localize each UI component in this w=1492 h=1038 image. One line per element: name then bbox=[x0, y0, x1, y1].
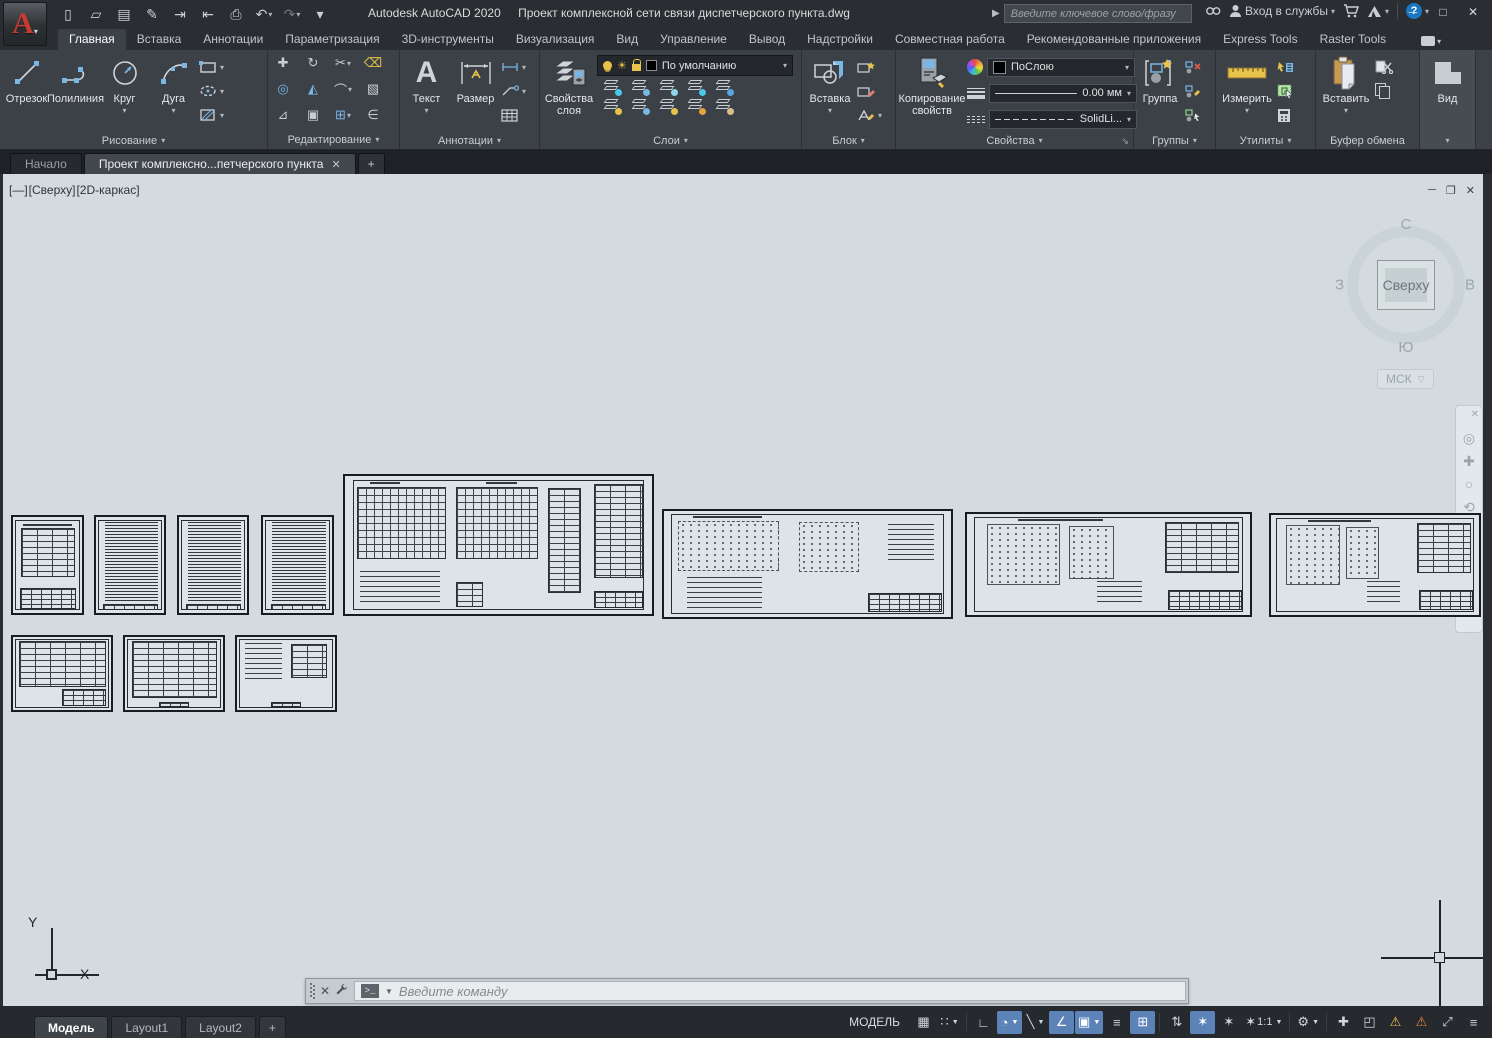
leader-icon bbox=[501, 85, 519, 97]
array-icon: ⊞ bbox=[335, 107, 346, 123]
customize-qat-icon[interactable]: ▾ bbox=[308, 3, 332, 25]
minimize-button[interactable]: ─ bbox=[1398, 0, 1428, 24]
orbit-icon[interactable]: ⟲ bbox=[1463, 500, 1475, 514]
workspace-switching-button[interactable]: ⚙▼ bbox=[1294, 1011, 1322, 1034]
quick-calculator-button[interactable] bbox=[1277, 105, 1294, 125]
viewcube[interactable]: С Ю З В Сверху bbox=[1339, 218, 1473, 352]
file-tab-1[interactable]: Проект комплексно...петчерского пункта✕ bbox=[84, 153, 356, 174]
move-button[interactable]: ✚ bbox=[268, 53, 298, 73]
make-current-button[interactable] bbox=[629, 79, 649, 95]
viewport-control-1[interactable]: [Сверху] bbox=[29, 183, 76, 197]
panel-label-clipboard[interactable]: Буфер обмена bbox=[1316, 132, 1419, 149]
group-button[interactable]: Группа bbox=[1137, 53, 1183, 105]
ribbon-display-toggle[interactable]: ▾ bbox=[1421, 36, 1441, 50]
ribbon-tab-1[interactable]: Вставка bbox=[126, 29, 193, 50]
transparency-toggle[interactable]: ⊞ bbox=[1130, 1011, 1155, 1034]
lineweight-toggle[interactable]: ≡ bbox=[1104, 1011, 1129, 1034]
polar-tracking-toggle[interactable]: ◔▼ bbox=[997, 1011, 1022, 1034]
autodesk-app-manager-icon[interactable]: ▾ bbox=[1367, 5, 1389, 18]
paste-clipboard-icon bbox=[1330, 55, 1362, 91]
offset-button[interactable]: ∈ bbox=[358, 105, 388, 125]
offset-icon: ∈ bbox=[367, 107, 378, 123]
sheet-floor-plans[interactable] bbox=[343, 474, 654, 616]
layer-unlock-icon bbox=[632, 64, 641, 71]
quick-select-button[interactable] bbox=[1277, 57, 1294, 77]
lineweight-icon bbox=[967, 88, 985, 99]
status-bar: МодельLayout1Layout2+ МОДЕЛЬ ▦∷▼∟◔▼╲▼∠▣▼… bbox=[0, 1006, 1492, 1038]
panel-label-draw[interactable]: Рисование▾ bbox=[0, 132, 267, 149]
layout-tab-layout1[interactable]: Layout1 bbox=[111, 1016, 182, 1038]
layout-tab-layout2[interactable]: Layout2 bbox=[185, 1016, 256, 1038]
chevron-down-icon: ▾ bbox=[34, 27, 38, 36]
ribbon-tab-7[interactable]: Управление bbox=[649, 29, 738, 50]
layout-tabs: МодельLayout1Layout2+ bbox=[0, 1006, 289, 1038]
copy-docs-icon bbox=[1375, 83, 1391, 99]
viewcube-north[interactable]: С bbox=[1401, 216, 1412, 233]
viewcube-east[interactable]: В bbox=[1465, 277, 1475, 294]
rotate-icon: ↻ bbox=[308, 55, 319, 71]
rotate-button[interactable]: ↻ bbox=[298, 53, 328, 73]
panel-utilities: Измерить ▾ Утилиты▾ bbox=[1216, 50, 1316, 149]
define-attributes-button[interactable]: ▾ bbox=[857, 105, 882, 125]
panel-properties: Копирование свойств ПоСлою ▾ bbox=[896, 50, 1134, 149]
autocad-logo-icon: A bbox=[12, 7, 34, 41]
isolate-objects-button[interactable]: ◰ bbox=[1357, 1011, 1382, 1034]
close-button[interactable]: ✕ bbox=[1458, 0, 1488, 24]
viewcube-face-top[interactable]: Сверху bbox=[1377, 260, 1435, 310]
panel-modify: ✚ ↻ ✂▾ ⌫ ◎ ◭ ⌒▾ ▧ ⊿ ▣ ⊞▾ ∈ Редактировани… bbox=[268, 50, 400, 149]
panel-label-layers[interactable]: Слои▾ bbox=[540, 132, 801, 149]
panel-clipboard: Вставить ▾ Буфер обмена bbox=[1316, 50, 1420, 149]
rectangle-tool-button[interactable]: ▾ bbox=[199, 57, 224, 77]
measure-button[interactable]: Измерить ▾ bbox=[1219, 53, 1275, 117]
linetype-icon bbox=[967, 116, 985, 123]
ungroup-button[interactable] bbox=[1185, 57, 1202, 77]
linetype-dropdown[interactable]: SolidLi... ▾ bbox=[989, 110, 1137, 129]
ribbon-tab-0[interactable]: Главная bbox=[58, 29, 126, 50]
arc-button[interactable]: Дуга ▾ bbox=[150, 53, 197, 117]
crosshair-cursor-h bbox=[1381, 957, 1483, 959]
ribbon-toggle-icon bbox=[1421, 36, 1435, 46]
layer-walk-button[interactable] bbox=[629, 98, 649, 114]
ribbon-tab-8[interactable]: Вывод bbox=[738, 29, 796, 50]
ucs-icon-x-axis bbox=[35, 974, 99, 976]
trim-button[interactable]: ✂▾ bbox=[328, 53, 358, 73]
annotation-visibility-toggle[interactable]: ✶ bbox=[1190, 1011, 1215, 1034]
stretch-button[interactable]: ⊿ bbox=[268, 105, 298, 125]
text-icon: A bbox=[416, 55, 438, 91]
close-tab-icon[interactable]: ✕ bbox=[331, 158, 340, 171]
layer-properties-icon bbox=[551, 55, 587, 91]
fillet-icon: ⌒ bbox=[334, 80, 347, 99]
pan-icon[interactable]: ✚ bbox=[1463, 454, 1475, 468]
ribbon-tab-10[interactable]: Совместная работа bbox=[884, 29, 1016, 50]
polyline-icon bbox=[60, 55, 92, 91]
window-title: Autodesk AutoCAD 2020 Проект комплексной… bbox=[368, 6, 850, 20]
table-button[interactable] bbox=[501, 105, 526, 125]
rectangle-icon bbox=[199, 61, 217, 74]
trim-icon: ✂ bbox=[335, 55, 346, 71]
create-block-icon bbox=[857, 61, 875, 74]
attributes-icon bbox=[857, 109, 875, 122]
crosshair-pickbox bbox=[1434, 952, 1445, 963]
create-block-button[interactable] bbox=[857, 57, 882, 77]
arc-icon bbox=[158, 55, 190, 91]
sheet-text-2[interactable] bbox=[177, 515, 249, 615]
group-select-icon bbox=[1185, 109, 1202, 122]
new-file-tab-button[interactable]: + bbox=[358, 153, 385, 174]
linear-dimension-button[interactable]: ▾ bbox=[501, 57, 526, 77]
chevron-down-icon: ▽ bbox=[1418, 374, 1425, 385]
drawing-area[interactable]: [—][Сверху][2D-каркас] ─❐✕ С Ю З В Сверх… bbox=[3, 174, 1483, 1006]
crosshair-button[interactable]: ✚ bbox=[1331, 1011, 1356, 1034]
sign-in-menu[interactable]: Вход в службы ▾ bbox=[1229, 4, 1335, 18]
ribbon: Отрезок Полилиния Круг ▾ bbox=[0, 50, 1492, 150]
plot-icon[interactable]: ⎙ bbox=[224, 3, 248, 25]
edit-block-button[interactable] bbox=[857, 81, 882, 101]
command-line-handle[interactable]: ✕ bbox=[306, 979, 352, 1003]
ortho-toggle[interactable]: ∟ bbox=[971, 1011, 996, 1034]
match-properties-icon bbox=[915, 55, 949, 91]
object-snap-tracking-toggle[interactable]: ∠ bbox=[1049, 1011, 1074, 1034]
search-expand-icon[interactable]: ▶ bbox=[992, 8, 1000, 19]
redo-icon[interactable]: ↷ ▾ bbox=[280, 3, 304, 25]
drag-grip-icon[interactable] bbox=[310, 983, 315, 999]
edit-block-icon bbox=[857, 85, 875, 98]
quick-access-toolbar: ▯▱▤✎⇥⇤⎙↶ ▾↷ ▾▾ bbox=[56, 3, 332, 25]
fillet-button[interactable]: ⌒▾ bbox=[328, 79, 358, 99]
chevron-down-icon[interactable]: ▼ bbox=[385, 987, 393, 996]
undo-icon[interactable]: ↶ ▾ bbox=[252, 3, 276, 25]
view-shape-icon bbox=[1431, 55, 1465, 91]
linear-dimension-icon bbox=[501, 62, 519, 72]
dimension-icon bbox=[459, 55, 493, 91]
layer-off-button[interactable] bbox=[601, 79, 621, 95]
line-button[interactable]: Отрезок bbox=[3, 53, 50, 105]
sheet-spec-2[interactable] bbox=[123, 635, 225, 712]
quick-select-icon bbox=[1277, 61, 1294, 74]
sheet-schematic-3[interactable] bbox=[1269, 513, 1481, 617]
save-web-mobile-icon[interactable]: ⇤ bbox=[196, 3, 220, 25]
panel-label-annotation[interactable]: Аннотации▾ bbox=[400, 132, 539, 149]
area-select-icon bbox=[1277, 84, 1294, 99]
divider bbox=[1159, 1013, 1160, 1031]
file-tab-0[interactable]: Начало bbox=[10, 153, 82, 174]
copy-button[interactable]: ◎ bbox=[268, 79, 298, 99]
sheet-spec-3[interactable] bbox=[235, 635, 337, 712]
app-title: Autodesk AutoCAD 2020 bbox=[368, 6, 501, 20]
layer-properties-button[interactable]: Свойства слоя bbox=[543, 53, 595, 117]
autocad-window: A ▾ ▯▱▤✎⇥⇤⎙↶ ▾↷ ▾▾ Autodesk AutoCAD 2020… bbox=[0, 0, 1492, 1038]
panel-label-block[interactable]: Блок▾ bbox=[802, 132, 895, 149]
layer-unlock-all-button[interactable] bbox=[685, 98, 705, 114]
erase-icon: ⌫ bbox=[364, 55, 382, 71]
panel-layers: Свойства слоя ☀ По умолчанию ▾ bbox=[540, 50, 802, 149]
polyline-button[interactable]: Полилиния bbox=[52, 53, 99, 105]
color-swatch bbox=[993, 61, 1006, 74]
grid-toggle[interactable]: ▦ bbox=[911, 1011, 936, 1034]
command-prompt-icon: >_ bbox=[361, 984, 379, 998]
hatch-icon bbox=[199, 108, 217, 122]
layer-vpfreeze-button[interactable] bbox=[657, 98, 677, 114]
lineweight-dropdown[interactable]: 0.00 мм ▾ bbox=[989, 84, 1137, 103]
ribbon-tab-13[interactable]: Raster Tools bbox=[1309, 29, 1397, 50]
panel-groups: Группа Группы▾ bbox=[1134, 50, 1216, 149]
move-icon: ✚ bbox=[278, 55, 289, 71]
graphics-performance-warning[interactable]: ⚠ bbox=[1409, 1011, 1434, 1034]
new-layout-button[interactable]: + bbox=[259, 1016, 286, 1038]
viewcube-ucs-menu[interactable]: МСК▽ bbox=[1377, 369, 1434, 389]
save-icon[interactable]: ▤ bbox=[112, 3, 136, 25]
divider bbox=[1326, 1013, 1327, 1031]
customize-wrench-icon[interactable] bbox=[335, 983, 348, 999]
paste-button[interactable]: Вставить ▾ bbox=[1319, 53, 1373, 117]
color-wheel-icon bbox=[967, 59, 983, 75]
panel-label-modify[interactable]: Редактирование▾ bbox=[268, 131, 399, 148]
app-store-cart-icon[interactable] bbox=[1343, 4, 1359, 18]
array-button[interactable]: ⊞▾ bbox=[328, 105, 358, 125]
text-button[interactable]: A Текст ▾ bbox=[403, 53, 450, 117]
ucs-icon-origin bbox=[46, 969, 57, 980]
vp-restore-icon[interactable]: ❐ bbox=[1446, 184, 1456, 197]
sheet-schematic-1[interactable] bbox=[662, 509, 953, 619]
ellipse-tool-button[interactable]: ▾ bbox=[199, 81, 224, 101]
ribbon-tab-4[interactable]: 3D-инструменты bbox=[391, 29, 505, 50]
panel-draw: Отрезок Полилиния Круг ▾ bbox=[0, 50, 268, 149]
layer-thaw-icon: ☀ bbox=[617, 59, 627, 72]
layer-isolate-button[interactable] bbox=[601, 98, 621, 114]
annotation-scale-button[interactable]: ✶ 1:1▼ bbox=[1242, 1011, 1285, 1034]
sheet-text-1[interactable] bbox=[94, 515, 166, 615]
object-color-dropdown[interactable]: ПоСлою ▾ bbox=[987, 58, 1135, 77]
edit-group-icon bbox=[1185, 85, 1202, 98]
ribbon-tab-bar: ГлавнаяВставкаАннотацииПараметризация3D-… bbox=[0, 28, 1492, 50]
window-controls: ─□✕ bbox=[1398, 0, 1488, 24]
panel-label-utilities[interactable]: Утилиты▾ bbox=[1216, 132, 1315, 149]
table-icon bbox=[501, 109, 518, 122]
measure-ruler-icon bbox=[1226, 55, 1268, 91]
command-placeholder: Введите команду bbox=[399, 984, 508, 999]
group-select-toggle-button[interactable] bbox=[1185, 105, 1202, 125]
customize-statusbar-button[interactable]: ≡ bbox=[1461, 1011, 1486, 1034]
isometric-drafting-toggle[interactable]: ╲▼ bbox=[1023, 1011, 1048, 1034]
zoom-icon[interactable]: ○ bbox=[1465, 477, 1473, 491]
layer-merge-button[interactable] bbox=[713, 98, 733, 114]
panel-label-properties[interactable]: Свойства▾ ⇘ bbox=[896, 132, 1133, 149]
save-as-icon[interactable]: ✎ bbox=[140, 3, 164, 25]
open-web-mobile-icon[interactable]: ⇥ bbox=[168, 3, 192, 25]
layer-lock-button[interactable] bbox=[685, 79, 705, 95]
application-menu-button[interactable]: A ▾ bbox=[3, 2, 47, 46]
match-layer-button[interactable] bbox=[713, 79, 733, 95]
ungroup-icon bbox=[1185, 61, 1202, 74]
viewport-control-0[interactable]: [—] bbox=[9, 183, 28, 197]
layer-on-icon bbox=[603, 61, 612, 70]
hardware-acceleration-warning[interactable]: ⚠ bbox=[1383, 1011, 1408, 1034]
ribbon-tab-9[interactable]: Надстройки bbox=[796, 29, 884, 50]
ucs-x-label: X bbox=[80, 966, 89, 982]
navbar-close-icon[interactable]: ✕ bbox=[1471, 408, 1479, 422]
cut-button[interactable] bbox=[1375, 57, 1393, 77]
line-icon bbox=[12, 55, 42, 91]
hatch-tool-button[interactable]: ▾ bbox=[199, 105, 224, 125]
dimension-button[interactable]: Размер bbox=[452, 53, 499, 105]
model-space-label[interactable]: МОДЕЛЬ bbox=[849, 1015, 900, 1029]
viewport-controls: [—][Сверху][2D-каркас] bbox=[9, 183, 141, 197]
layer-freeze-button[interactable] bbox=[657, 79, 677, 95]
ribbon-tab-3[interactable]: Параметризация bbox=[274, 29, 390, 50]
mirror-button[interactable]: ◭ bbox=[298, 79, 328, 99]
clean-screen-button[interactable]: ⤢ bbox=[1435, 1011, 1460, 1034]
selection-cycling-toggle[interactable]: ⇅ bbox=[1164, 1011, 1189, 1034]
dialog-launcher-icon[interactable]: ⇘ bbox=[1121, 136, 1129, 147]
title-bar: A ▾ ▯▱▤✎⇥⇤⎙↶ ▾↷ ▾▾ Autodesk AutoCAD 2020… bbox=[0, 0, 1492, 28]
command-input[interactable]: >_ ▼ Введите команду bbox=[354, 981, 1186, 1001]
sheet-contents[interactable] bbox=[11, 515, 84, 615]
viewport-control-2[interactable]: [2D-каркас] bbox=[76, 183, 139, 197]
ucs-y-label: Y bbox=[28, 914, 37, 930]
ellipse-icon bbox=[199, 85, 217, 97]
panel-view: Вид ▾ bbox=[1420, 50, 1476, 149]
erase-button[interactable]: ⌫ bbox=[358, 53, 388, 73]
circle-button[interactable]: Круг ▾ bbox=[101, 53, 148, 117]
search-icon[interactable] bbox=[1205, 4, 1221, 18]
cut-icon bbox=[1375, 60, 1393, 74]
copy-icon: ◎ bbox=[277, 81, 288, 97]
ribbon-tab-6[interactable]: Вид bbox=[605, 29, 649, 50]
command-line[interactable]: ✕ >_ ▼ Введите команду bbox=[305, 978, 1189, 1004]
autoscale-toggle[interactable]: ✶ bbox=[1216, 1011, 1241, 1034]
quick-calc-area-button[interactable] bbox=[1277, 81, 1294, 101]
open-icon[interactable]: ▱ bbox=[84, 3, 108, 25]
viewport-window-buttons: ─❐✕ bbox=[1428, 184, 1475, 197]
divider bbox=[966, 1013, 967, 1031]
calculator-icon bbox=[1277, 108, 1291, 123]
ribbon-tab-2[interactable]: Аннотации bbox=[192, 29, 274, 50]
panel-annotation: A Текст ▾ Размер ▾ bbox=[400, 50, 540, 149]
vp-minimize-icon[interactable]: ─ bbox=[1428, 184, 1436, 197]
new-document-icon[interactable]: ▯ bbox=[56, 3, 80, 25]
maximize-button[interactable]: □ bbox=[1428, 0, 1458, 24]
ribbon-tab-12[interactable]: Express Tools bbox=[1212, 29, 1308, 50]
view-button[interactable]: Вид bbox=[1424, 53, 1471, 105]
close-icon[interactable]: ✕ bbox=[320, 984, 330, 998]
divider bbox=[1289, 1013, 1290, 1031]
explode-button[interactable]: ▧ bbox=[358, 79, 388, 99]
explode-icon: ▧ bbox=[367, 81, 379, 97]
ribbon-tab-5[interactable]: Визуализация bbox=[505, 29, 606, 50]
panel-block: Вставка ▾ ▾ Блок▾ bbox=[802, 50, 896, 149]
document-title: Проект комплексной сети связи диспетчерс… bbox=[518, 6, 850, 20]
snap-mode-toggle[interactable]: ∷▼ bbox=[937, 1011, 962, 1034]
steering-wheel-icon[interactable]: ◎ bbox=[1463, 431, 1475, 445]
ribbon-tab-11[interactable]: Рекомендованные приложения bbox=[1016, 29, 1212, 50]
sheet-spec-1[interactable] bbox=[11, 635, 113, 712]
copy-clip-button[interactable] bbox=[1375, 81, 1393, 101]
object-snap-toggle[interactable]: ▣▼ bbox=[1075, 1011, 1103, 1034]
circle-icon bbox=[109, 55, 141, 91]
insert-block-button[interactable]: Вставка ▾ bbox=[805, 53, 855, 117]
layer-dropdown[interactable]: ☀ По умолчанию ▾ bbox=[597, 55, 793, 76]
vp-close-icon[interactable]: ✕ bbox=[1466, 184, 1475, 197]
sheet-schematic-2[interactable] bbox=[965, 512, 1252, 617]
person-icon bbox=[1229, 4, 1242, 18]
search-input[interactable]: Введите ключевое слово/фразу bbox=[1004, 4, 1192, 23]
group-icon bbox=[1143, 55, 1177, 91]
scale-icon: ▣ bbox=[307, 107, 319, 123]
panel-label-view[interactable]: ▾ bbox=[1420, 132, 1475, 149]
stretch-icon: ⊿ bbox=[278, 107, 289, 123]
viewcube-west[interactable]: З bbox=[1335, 277, 1344, 294]
leader-button[interactable]: ▾ bbox=[501, 81, 526, 101]
scale-button[interactable]: ▣ bbox=[298, 105, 328, 125]
layout-tab-модель[interactable]: Модель bbox=[34, 1016, 108, 1038]
match-properties-button[interactable]: Копирование свойств bbox=[899, 53, 965, 117]
layer-color-swatch bbox=[646, 60, 657, 71]
insert-block-icon bbox=[813, 55, 847, 91]
viewcube-south[interactable]: Ю bbox=[1398, 339, 1413, 356]
file-tab-bar: НачалоПроект комплексно...петчерского пу… bbox=[0, 150, 1492, 174]
sheet-text-3[interactable] bbox=[261, 515, 334, 615]
mirror-icon: ◭ bbox=[308, 81, 318, 97]
edit-group-button[interactable] bbox=[1185, 81, 1202, 101]
panel-label-groups[interactable]: Группы▾ bbox=[1134, 132, 1215, 149]
